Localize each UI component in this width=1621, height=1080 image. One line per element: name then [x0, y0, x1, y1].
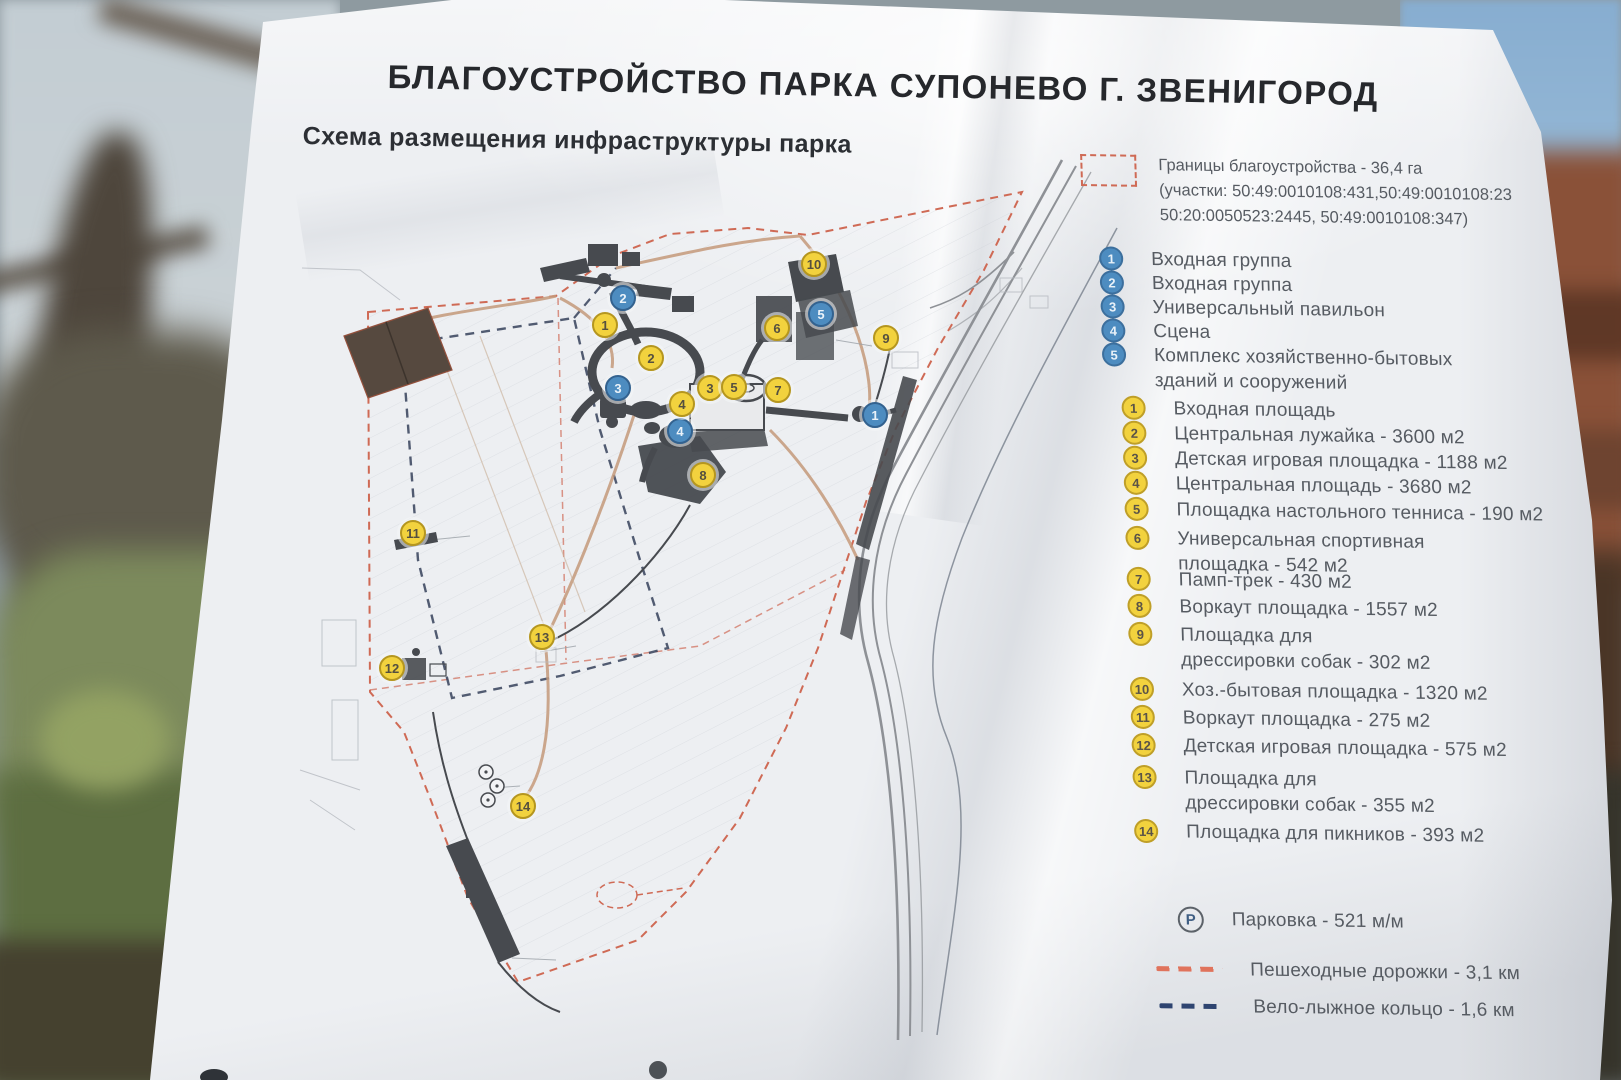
map-marker-yellow-8: 8 — [690, 462, 716, 488]
yellow-circle-icon: 1 — [1121, 396, 1146, 420]
blue-circle-icon: 5 — [1102, 342, 1127, 366]
map-marker-yellow-14: 14 — [510, 793, 536, 819]
yellow-circle-icon: 10 — [1130, 677, 1155, 701]
yellow-circle-icon: 4 — [1123, 471, 1148, 495]
marker-number: 6 — [773, 321, 780, 336]
legend-blue-4: 4 Сцена — [1101, 318, 1211, 345]
map-marker-blue-5: 5 — [808, 301, 834, 327]
map-marker-blue-3: 3 — [605, 375, 631, 401]
legend-yellow-5: 5 Площадка настольного тенниса - 190 м2 — [1124, 497, 1543, 528]
map-marker-yellow-12: 12 — [379, 655, 405, 681]
marker-number: 2 — [619, 291, 626, 306]
marker-number: 5 — [817, 307, 824, 322]
yellow-circle-icon: 7 — [1126, 567, 1151, 591]
yellow-circle-icon: 12 — [1131, 733, 1156, 757]
legend-yellow-12: 12 Детская игровая площадка - 575 м2 — [1131, 733, 1507, 763]
map-marker-yellow-13: 13 — [529, 624, 555, 650]
legend-yellow-8: 8 Воркаут площадка - 1557 м2 — [1127, 594, 1438, 623]
boundary-label: Границы благоустройства - 36,4 га (участ… — [1158, 153, 1513, 233]
blue-circle-icon: 3 — [1100, 294, 1125, 318]
poster-subtitle: Схема размещения инфраструктуры парка — [303, 122, 853, 160]
legend-pedestrian-paths: Пешеходные дорожки - 3,1 км — [1156, 956, 1520, 986]
marker-number: 4 — [676, 424, 683, 439]
map-marker-yellow-6: 6 — [764, 315, 790, 341]
photo-of-park-information-board: БЛАГОУСТРОЙСТВО ПАРКА СУПОНЕВО Г. ЗВЕНИГ… — [0, 0, 1621, 1080]
map-marker-yellow-11: 11 — [400, 520, 426, 546]
marker-number: 5 — [730, 380, 737, 395]
map-marker-yellow-10: 10 — [801, 251, 827, 277]
blue-circle-icon: 2 — [1100, 270, 1125, 294]
marker-number: 12 — [385, 661, 399, 676]
map-marker-blue-4: 4 — [667, 418, 693, 444]
yellow-circle-icon: 2 — [1122, 421, 1147, 445]
ski-ring-swatch — [1159, 1003, 1225, 1009]
yellow-circle-icon: 13 — [1132, 765, 1157, 789]
legend-ski-ring: Вело-лыжное кольцо - 1,6 км — [1159, 993, 1515, 1023]
legend-parking: P Парковка - 521 м/м — [1177, 906, 1404, 935]
parking-icon: P — [1177, 906, 1204, 932]
map-marker-blue-1: 1 — [862, 402, 888, 428]
marker-number: 13 — [535, 630, 549, 645]
map-marker-yellow-5: 5 — [721, 374, 747, 400]
yellow-circle-icon: 11 — [1130, 705, 1155, 729]
marker-number: 7 — [774, 383, 781, 398]
legend-yellow-14: 14 Площадка для пикников - 393 м2 — [1134, 819, 1485, 849]
yellow-circle-icon: 14 — [1134, 819, 1159, 843]
map-legend: Границы благоустройства - 36,4 га (участ… — [1080, 150, 1597, 1057]
marker-number: 14 — [516, 799, 530, 814]
yellow-circle-icon: 5 — [1124, 497, 1149, 521]
marker-number: 10 — [807, 257, 821, 272]
map-marker-yellow-4: 4 — [669, 391, 695, 417]
yellow-circle-icon: 9 — [1128, 622, 1153, 646]
map-marker-yellow-3: 3 — [697, 375, 723, 401]
blue-circle-icon: 1 — [1099, 246, 1124, 270]
map-marker-yellow-1: 1 — [592, 312, 618, 338]
legend-yellow-4: 4 Центральная площадь - 3680 м2 — [1123, 471, 1471, 501]
pedestrian-path-swatch — [1156, 966, 1222, 972]
yellow-circle-icon: 3 — [1123, 446, 1148, 470]
marker-number: 1 — [601, 318, 608, 333]
marker-number: 8 — [699, 468, 706, 483]
marker-number: 1 — [871, 408, 878, 423]
map-marker-yellow-2: 2 — [638, 345, 664, 371]
yellow-circle-icon: 8 — [1127, 594, 1152, 618]
marker-number: 11 — [406, 526, 420, 541]
legend-yellow-9: 9 Площадка для дрессировки собак - 302 м… — [1128, 622, 1431, 676]
marker-number: 3 — [614, 381, 621, 396]
legend-yellow-7: 7 Памп-трек - 430 м2 — [1126, 567, 1352, 595]
yellow-circle-icon: 6 — [1125, 526, 1150, 550]
legend-blue-5: 5 Комплекс хозяйственно-бытовых зданий и… — [1102, 342, 1454, 397]
marker-number: 2 — [647, 351, 654, 366]
map-marker-blue-2: 2 — [610, 285, 636, 311]
legend-yellow-10: 10 Хоз.-бытовая площадка - 1320 м2 — [1130, 677, 1488, 707]
blue-circle-icon: 4 — [1101, 318, 1126, 342]
legend-yellow-1: 1 Входная площадь — [1121, 396, 1336, 424]
boundary-swatch — [1080, 154, 1137, 187]
marker-number: 3 — [706, 381, 713, 396]
map-marker-yellow-7: 7 — [765, 377, 791, 403]
legend-yellow-13: 13 Площадка для дрессировки собак - 355 … — [1132, 765, 1435, 819]
marker-number: 9 — [882, 331, 889, 346]
legend-yellow-11: 11 Воркаут площадка - 275 м2 — [1130, 705, 1430, 734]
park-boundary — [368, 192, 1022, 982]
map-marker-yellow-9: 9 — [873, 325, 899, 351]
poster-title: БЛАГОУСТРОЙСТВО ПАРКА СУПОНЕВО Г. ЗВЕНИГ… — [387, 58, 1379, 113]
legend-boundary: Границы благоустройства - 36,4 га (участ… — [1080, 152, 1513, 233]
marker-number: 4 — [678, 397, 685, 412]
